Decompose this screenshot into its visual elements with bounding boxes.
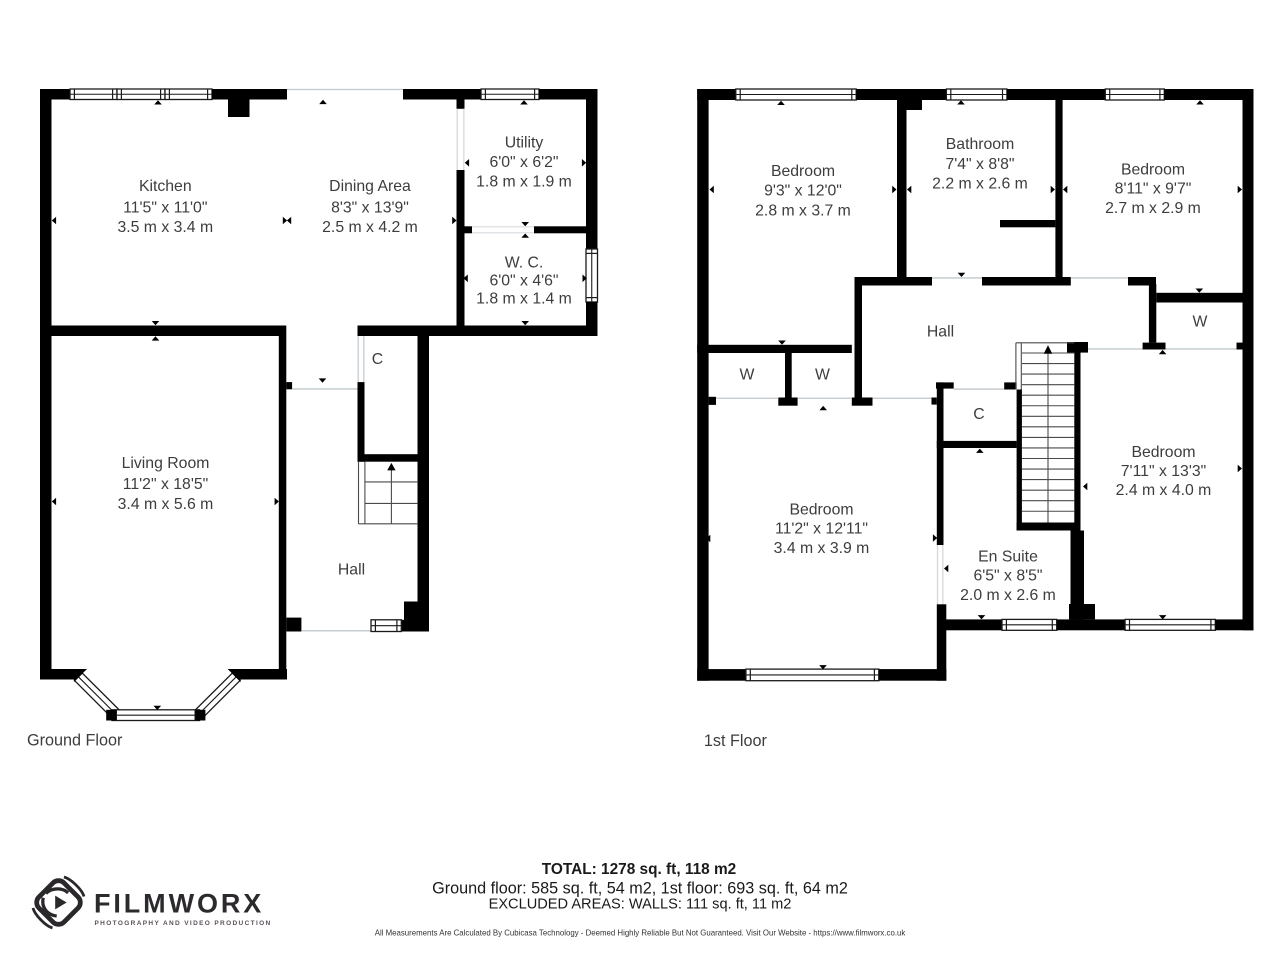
svg-text:FILMWORX: FILMWORX [94,889,264,919]
svg-text:Bedroom: Bedroom [1131,444,1195,461]
svg-text:C: C [372,351,383,368]
svg-text:1.8 m x 1.4 m: 1.8 m x 1.4 m [476,290,572,307]
svg-text:TOTAL: 1278 sq. ft, 118 m2: TOTAL: 1278 sq. ft, 118 m2 [542,861,736,878]
svg-text:Ground floor: 585 sq. ft, 54 m: Ground floor: 585 sq. ft, 54 m2, 1st flo… [432,880,848,898]
svg-text:6'0" x 4'6": 6'0" x 4'6" [489,272,558,289]
svg-text:1.8 m x 1.9 m: 1.8 m x 1.9 m [476,173,572,190]
svg-text:2.5 m x 4.2 m: 2.5 m x 4.2 m [322,219,418,236]
svg-text:2.7 m x 2.9 m: 2.7 m x 2.9 m [1105,200,1201,217]
svg-text:All Measurements Are Calculate: All Measurements Are Calculated By Cubic… [375,929,906,938]
svg-text:Hall: Hall [338,562,365,579]
svg-text:2.4 m x 4.0 m: 2.4 m x 4.0 m [1116,482,1212,499]
svg-text:3.5 m x 3.4 m: 3.5 m x 3.4 m [117,219,213,236]
svg-text:W: W [740,367,755,384]
svg-text:Kitchen: Kitchen [139,178,192,195]
svg-text:3.4 m x 3.9 m: 3.4 m x 3.9 m [774,540,870,557]
svg-text:W: W [815,367,830,384]
svg-text:En Suite: En Suite [978,548,1038,565]
svg-text:1st Floor: 1st Floor [704,732,768,750]
svg-text:3.4 m x 5.6 m: 3.4 m x 5.6 m [118,496,214,513]
svg-text:W: W [1193,314,1208,331]
svg-text:8'3" x 13'9": 8'3" x 13'9" [331,199,409,216]
svg-text:2.8 m x 3.7 m: 2.8 m x 3.7 m [755,202,851,219]
svg-text:Living Room: Living Room [122,455,210,472]
svg-text:11'5" x 11'0": 11'5" x 11'0" [123,199,207,216]
svg-text:Utility: Utility [505,134,544,151]
svg-text:Ground Floor: Ground Floor [27,732,123,750]
svg-text:6'5" x 8'5": 6'5" x 8'5" [973,568,1042,585]
svg-text:C: C [973,406,984,423]
svg-text:PHOTOGRAPHY AND VIDEO PRODUCTI: PHOTOGRAPHY AND VIDEO PRODUCTION [95,920,272,927]
svg-text:Hall: Hall [927,324,954,341]
svg-text:2.2 m x 2.6 m: 2.2 m x 2.6 m [932,176,1028,193]
svg-text:Bathroom: Bathroom [946,136,1015,153]
svg-text:7'11" x 13'3": 7'11" x 13'3" [1121,463,1206,480]
svg-text:W. C.: W. C. [505,254,544,271]
svg-text:6'0" x 6'2": 6'0" x 6'2" [489,154,558,171]
svg-text:EXCLUDED AREAS: WALLS: 111 sq.: EXCLUDED AREAS: WALLS: 111 sq. ft, 11 m2 [489,897,792,913]
svg-text:Dining Area: Dining Area [329,178,411,195]
svg-text:8'11" x 9'7": 8'11" x 9'7" [1115,181,1192,198]
svg-text:2.0 m x 2.6 m: 2.0 m x 2.6 m [960,587,1056,604]
svg-text:11'2" x 12'11": 11'2" x 12'11" [775,521,868,538]
svg-text:Bedroom: Bedroom [771,163,835,180]
svg-text:7'4" x 8'8": 7'4" x 8'8" [945,156,1014,173]
svg-text:9'3" x 12'0": 9'3" x 12'0" [764,183,842,200]
svg-text:Bedroom: Bedroom [1121,162,1185,179]
svg-text:Bedroom: Bedroom [789,502,853,519]
svg-text:11'2" x 18'5": 11'2" x 18'5" [123,476,208,493]
